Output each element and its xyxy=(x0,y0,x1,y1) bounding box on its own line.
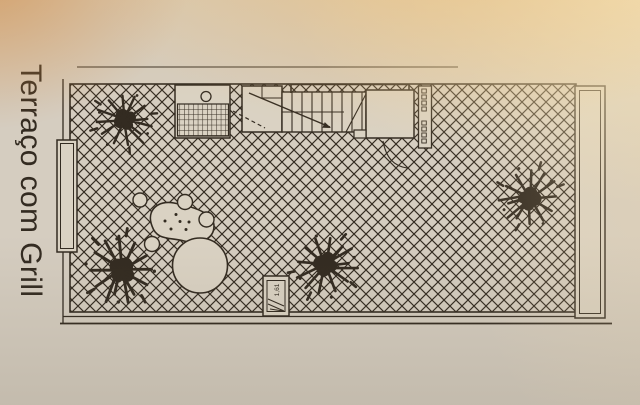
seat-circle xyxy=(199,212,214,227)
column-marker-label: 1,61 xyxy=(274,283,281,296)
floor-plan-drawing: 1,61 xyxy=(0,0,640,405)
photo-of-floor-plan: Terraço com Grill xyxy=(0,0,640,405)
right-ledge xyxy=(575,86,605,318)
left-planter xyxy=(57,140,77,252)
seat-circle xyxy=(133,193,147,207)
round-table xyxy=(173,238,228,293)
service-strip xyxy=(419,86,432,148)
seat-circle xyxy=(145,237,160,252)
grill-counter xyxy=(175,85,230,138)
seat-circle xyxy=(178,195,193,210)
column-marker: 1,61 xyxy=(263,276,289,316)
plan-title: Terraço com Grill xyxy=(14,64,46,354)
grill-grate xyxy=(178,104,229,136)
